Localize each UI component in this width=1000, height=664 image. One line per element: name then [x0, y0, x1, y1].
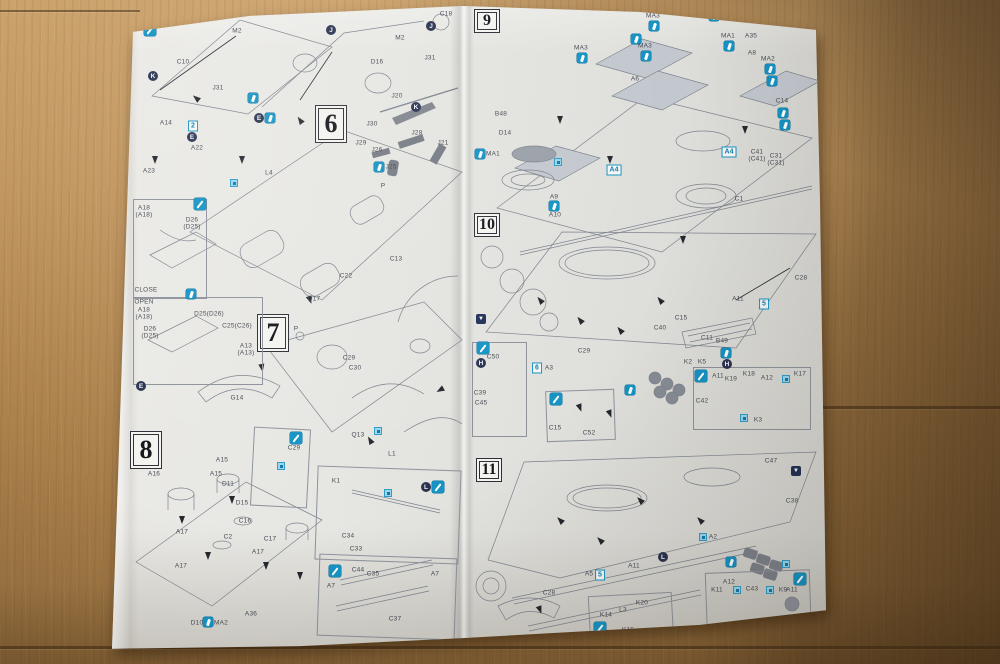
part-label: J28	[411, 129, 422, 136]
part-label: P	[381, 182, 386, 189]
part-label: L4	[265, 169, 273, 176]
cement-icon	[709, 11, 719, 21]
attention-icon: ▼	[476, 314, 486, 324]
paint-icon	[766, 586, 774, 594]
part-label: C41 (C41)	[748, 149, 765, 164]
part-label: C44	[352, 566, 365, 573]
part-label: A7	[431, 570, 439, 577]
paint-icon	[277, 462, 285, 470]
step-number: 11	[476, 458, 502, 482]
part-label: C18	[440, 10, 453, 17]
part-label: K4	[749, 630, 757, 637]
part-label: J31	[212, 84, 223, 91]
part-label: C29	[343, 354, 356, 361]
part-label: K5	[698, 358, 706, 365]
part-label: K17	[794, 370, 806, 377]
brush-icon	[290, 432, 302, 444]
part-label: C16	[239, 517, 252, 524]
part-label: B49	[716, 337, 728, 344]
part-label: CLOSE	[134, 286, 157, 293]
part-label: C39	[474, 389, 487, 396]
cement-icon	[577, 53, 587, 63]
cement-icon	[641, 51, 651, 61]
part-label: C34	[342, 532, 355, 539]
part-label: C17	[264, 535, 277, 542]
paint-icon	[740, 414, 748, 422]
part-label: K11	[711, 586, 723, 593]
part-label: MA1	[721, 32, 735, 39]
option-badge: E	[187, 132, 197, 142]
part-label: C14	[776, 97, 789, 104]
ref-box: 2	[188, 121, 198, 132]
part-label: C22	[340, 272, 353, 279]
part-label: A12	[723, 578, 735, 585]
part-label: J29	[355, 139, 366, 146]
part-label: C40	[654, 324, 667, 331]
option-badge: J	[426, 21, 436, 31]
part-label: D25(D26)	[194, 310, 224, 317]
part-label: A17	[252, 548, 264, 555]
step-number: 10	[474, 213, 500, 237]
paint-icon	[230, 179, 238, 187]
part-label: D17	[308, 295, 321, 302]
part-label: K20	[636, 599, 648, 606]
part-label: A11	[786, 586, 798, 593]
part-label: A12	[761, 374, 773, 381]
option-badge: L	[421, 482, 431, 492]
step-number: 6	[315, 105, 347, 143]
brush-icon	[695, 370, 707, 382]
cement-icon	[203, 617, 213, 627]
part-label: C47	[765, 457, 778, 464]
ref-box: 5	[595, 570, 605, 581]
part-label: C45	[475, 399, 488, 406]
part-label: J20	[391, 92, 402, 99]
part-label: Q13	[352, 431, 365, 438]
part-label: A18 (A18)	[136, 205, 153, 220]
paint-icon	[782, 375, 790, 383]
inset-box	[588, 592, 675, 646]
paint-icon	[554, 158, 562, 166]
part-label: C13	[390, 255, 403, 262]
part-label: A7	[327, 582, 335, 589]
part-label: A15	[216, 456, 228, 463]
part-label: MA3	[646, 12, 660, 19]
part-label: C37	[389, 615, 402, 622]
step-number: 9	[474, 9, 500, 33]
part-label: A23	[143, 167, 155, 174]
option-badge: K	[411, 102, 421, 112]
paint-icon	[374, 427, 382, 435]
part-label: D11	[222, 480, 234, 487]
part-label: C50	[487, 353, 500, 360]
ref-box: A4	[607, 165, 622, 176]
part-label: MA3	[638, 42, 652, 49]
brush-icon	[194, 198, 206, 210]
cement-icon	[765, 64, 775, 74]
part-label: D14	[499, 129, 512, 136]
part-label: C28	[543, 589, 556, 596]
part-label: C38	[786, 497, 799, 504]
cement-icon	[780, 120, 790, 130]
part-label: D10	[191, 619, 204, 626]
cement-icon	[649, 21, 659, 31]
cement-icon	[778, 108, 788, 118]
part-label: D16	[371, 58, 384, 65]
cement-icon	[767, 76, 777, 86]
part-label: C1	[735, 195, 744, 202]
option-badge: H	[722, 359, 732, 369]
part-label: C31 (C31)	[767, 153, 784, 168]
part-label: D26 (D25)	[183, 217, 200, 232]
part-label: K2	[684, 358, 692, 365]
part-label: A18 (A18)	[136, 307, 153, 322]
part-label: D26 (D25)	[141, 326, 158, 341]
part-label: A17	[175, 562, 187, 569]
part-label: A9	[550, 193, 558, 200]
cement-icon	[549, 201, 559, 211]
part-label: J30	[366, 120, 377, 127]
cement-icon	[475, 149, 485, 159]
part-label: A16	[148, 470, 160, 477]
part-label: J26	[371, 146, 382, 153]
paint-icon	[733, 586, 741, 594]
part-label: J25	[385, 163, 396, 170]
part-label: OPEN	[134, 298, 153, 305]
part-label: C33	[350, 545, 363, 552]
part-label: A36	[245, 610, 257, 617]
part-label: C29	[578, 347, 591, 354]
part-label: L1	[388, 450, 396, 457]
brush-icon	[144, 24, 156, 36]
ref-box: 5	[759, 299, 769, 310]
part-label: B48	[495, 110, 507, 117]
part-label: C42	[696, 397, 709, 404]
part-label: L3	[619, 606, 627, 613]
paint-icon	[782, 560, 790, 568]
brush-icon	[794, 573, 806, 585]
brush-icon	[329, 565, 341, 577]
part-label: D15	[236, 499, 249, 506]
paint-icon	[699, 533, 707, 541]
part-label: MA1	[486, 150, 500, 157]
paint-icon	[384, 489, 392, 497]
part-label: A11	[712, 372, 724, 379]
option-badge: J	[326, 25, 336, 35]
step-number: 8	[130, 431, 162, 469]
option-badge: L	[658, 552, 668, 562]
part-label: A17	[176, 528, 188, 535]
part-label: P	[294, 325, 299, 332]
part-label: M2	[395, 34, 404, 41]
part-label: J21	[437, 139, 448, 146]
part-label: C35	[367, 570, 380, 577]
part-label: A3	[545, 364, 553, 371]
part-label: K3	[754, 416, 762, 423]
part-label: A2	[709, 533, 717, 540]
labels-layer: 6M2JC10KJ31C18JM2D16J31A142EA22A23EJ20KJ…	[0, 0, 1000, 664]
cement-icon	[265, 113, 275, 123]
brush-icon	[477, 342, 489, 354]
part-label: C15	[549, 424, 562, 431]
option-badge: E	[254, 113, 264, 123]
part-label: MA2	[761, 55, 775, 62]
part-label: A6	[631, 75, 639, 82]
instruction-sheet: 6M2JC10KJ31C18JM2D16J31A142EA22A23EJ20KJ…	[0, 0, 1000, 664]
paint-icon	[741, 630, 749, 638]
cement-icon	[186, 289, 196, 299]
part-label: M2	[232, 27, 241, 34]
brush-icon	[594, 622, 606, 634]
part-label: K1	[332, 477, 340, 484]
part-label: C30	[349, 364, 362, 371]
ref-box: A4	[722, 147, 737, 158]
part-label: A13 (A13)	[238, 343, 255, 358]
part-label: J31	[424, 54, 435, 61]
attention-icon: ▼	[791, 466, 801, 476]
part-label: K19	[725, 375, 737, 382]
part-label: C15	[675, 314, 688, 321]
part-label: C10	[177, 58, 190, 65]
part-label: K15	[622, 626, 634, 633]
instruction-sheet-wrap: 6M2JC10KJ31C18JM2D16J31A142EA22A23EJ20KJ…	[0, 0, 1000, 664]
part-label: A14	[160, 119, 172, 126]
cement-icon	[726, 557, 736, 567]
part-label: A10	[549, 211, 561, 218]
option-badge: E	[136, 381, 146, 391]
cement-icon	[625, 385, 635, 395]
cement-icon	[374, 162, 384, 172]
brush-icon	[432, 481, 444, 493]
part-label: C29	[288, 444, 301, 451]
part-label: C52	[583, 429, 596, 436]
option-badge: H	[476, 358, 486, 368]
cement-icon	[724, 41, 734, 51]
brush-icon	[550, 393, 562, 405]
part-label: A35	[745, 32, 757, 39]
option-badge: K	[148, 71, 158, 81]
part-label: C2	[224, 533, 233, 540]
part-label: K14	[600, 611, 612, 618]
part-label: A15	[210, 470, 222, 477]
part-label: A11	[628, 562, 640, 569]
part-label: G14	[231, 394, 244, 401]
ref-box: 6	[532, 363, 542, 374]
part-label: C28	[795, 274, 808, 281]
part-label: C43	[746, 585, 759, 592]
part-label: A5	[585, 570, 593, 577]
cement-icon	[248, 93, 258, 103]
part-label: A11	[732, 295, 744, 302]
part-label: C11	[701, 334, 713, 341]
part-label: A8	[748, 49, 756, 56]
part-label: MA2	[214, 619, 228, 626]
part-label: K18	[743, 370, 755, 377]
part-label: A22	[191, 144, 203, 151]
cement-icon	[721, 348, 731, 358]
part-label: C25(C26)	[222, 322, 252, 329]
part-label: MA3	[574, 44, 588, 51]
photo-stage: 6M2JC10KJ31C18JM2D16J31A142EA22A23EJ20KJ…	[0, 0, 1000, 664]
